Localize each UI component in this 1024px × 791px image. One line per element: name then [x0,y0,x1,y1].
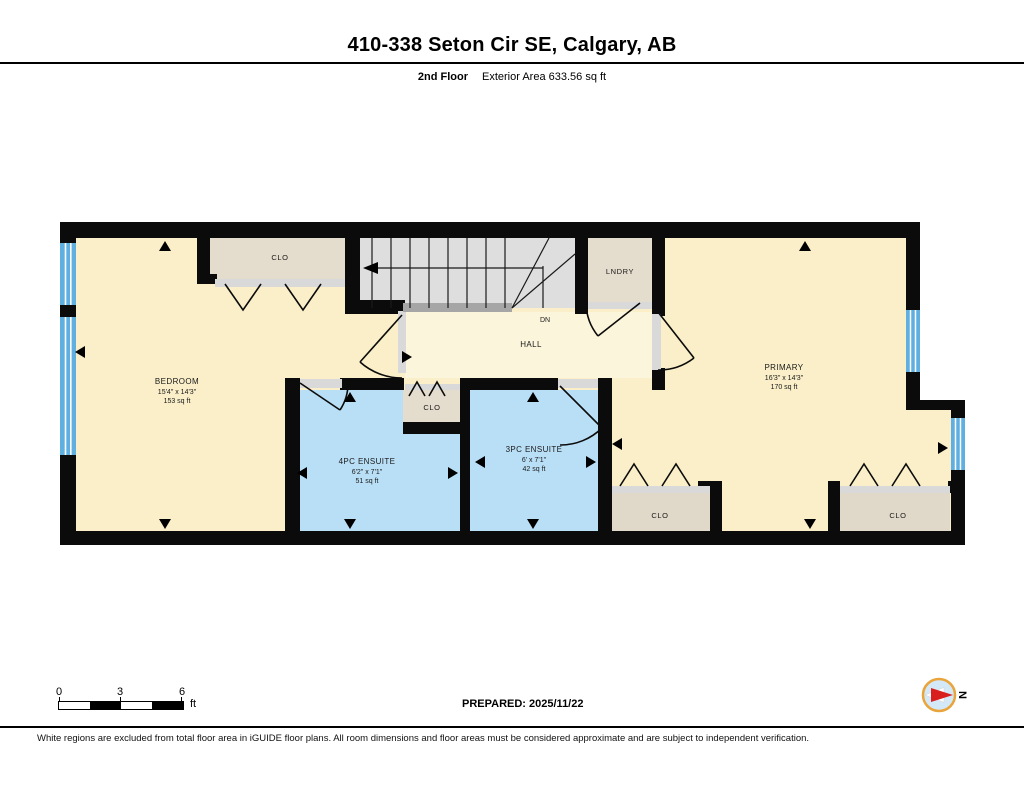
primary-label: PRIMARY [764,363,803,372]
floor-label: 2nd Floor [418,71,468,83]
scale-seg [152,702,183,709]
window-right-lower [951,418,965,470]
bedroom-label: BEDROOM [155,377,199,386]
compass-north-label: N [956,691,968,699]
dn-label: DN [540,317,550,324]
footer-divider [0,726,1024,728]
ensuite4-area: 51 sq ft [356,478,379,485]
hall-label: HALL [520,340,542,349]
laundry-label: LNDRY [606,267,634,276]
footer-disclaimer: White regions are excluded from total fl… [37,733,997,744]
scale-tick-6: 6 [179,686,185,698]
page-title: 410-338 Seton Cir SE, Calgary, AB [0,34,1024,57]
exterior-area-label: Exterior Area 633.56 sq ft [482,71,606,83]
window-left-lower [60,317,76,455]
window-right-upper [906,310,920,372]
compass-icon: N [918,674,970,718]
ensuite3-label: 3PC ENSUITE [506,445,563,454]
floorplan-drawing: BEDROOM 15'4" x 14'3" 153 sq ft PRIMARY … [60,222,965,545]
bedroom-area: 153 sq ft [164,398,191,405]
header-divider [0,62,1024,64]
floorplan-page: 410-338 Seton Cir SE, Calgary, AB 2nd Fl… [0,0,1024,791]
scale-bar: 0 3 6 ft [58,686,218,716]
ensuite3-area: 42 sq ft [523,466,546,473]
ensuite4-dims: 6'2" x 7'1" [352,469,383,476]
primary-dims: 16'3" x 14'3" [765,375,804,382]
scale-bar-segments [58,701,184,710]
bedroom-dims: 15'4" x 14'3" [158,389,197,396]
scale-seg [121,702,152,709]
closet-right-label: CLO [889,511,906,520]
ensuite4-label: 4PC ENSUITE [339,457,396,466]
scale-unit: ft [190,698,196,710]
scale-seg [90,702,121,709]
prepared-date: PREPARED: 2025/11/22 [462,698,583,710]
ensuite3-dims: 6' x 7'1" [522,457,547,464]
closet-top-label: CLO [271,253,288,262]
scale-seg [59,702,90,709]
subheader: 2nd FloorExterior Area 633.56 sq ft [0,71,1024,83]
closet-small-label: CLO [423,403,440,412]
primary-area: 170 sq ft [771,384,798,391]
closet-mid-label: CLO [651,511,668,520]
window-left-upper [60,243,76,305]
stair-landing [403,303,512,312]
